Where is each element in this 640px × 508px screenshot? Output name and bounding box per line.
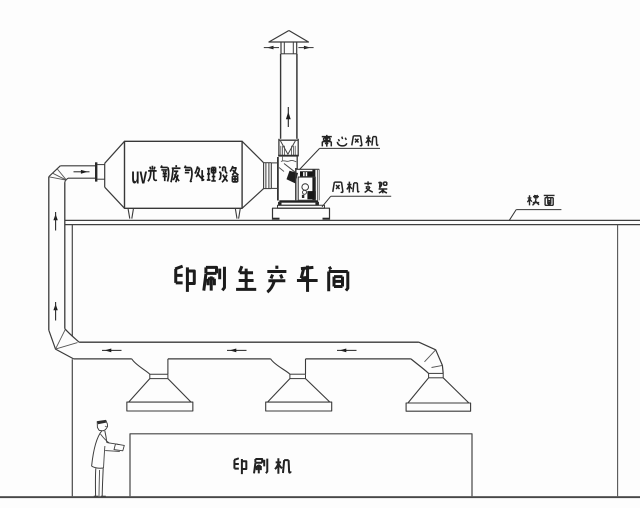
svg-text:uv: uv	[131, 163, 148, 188]
